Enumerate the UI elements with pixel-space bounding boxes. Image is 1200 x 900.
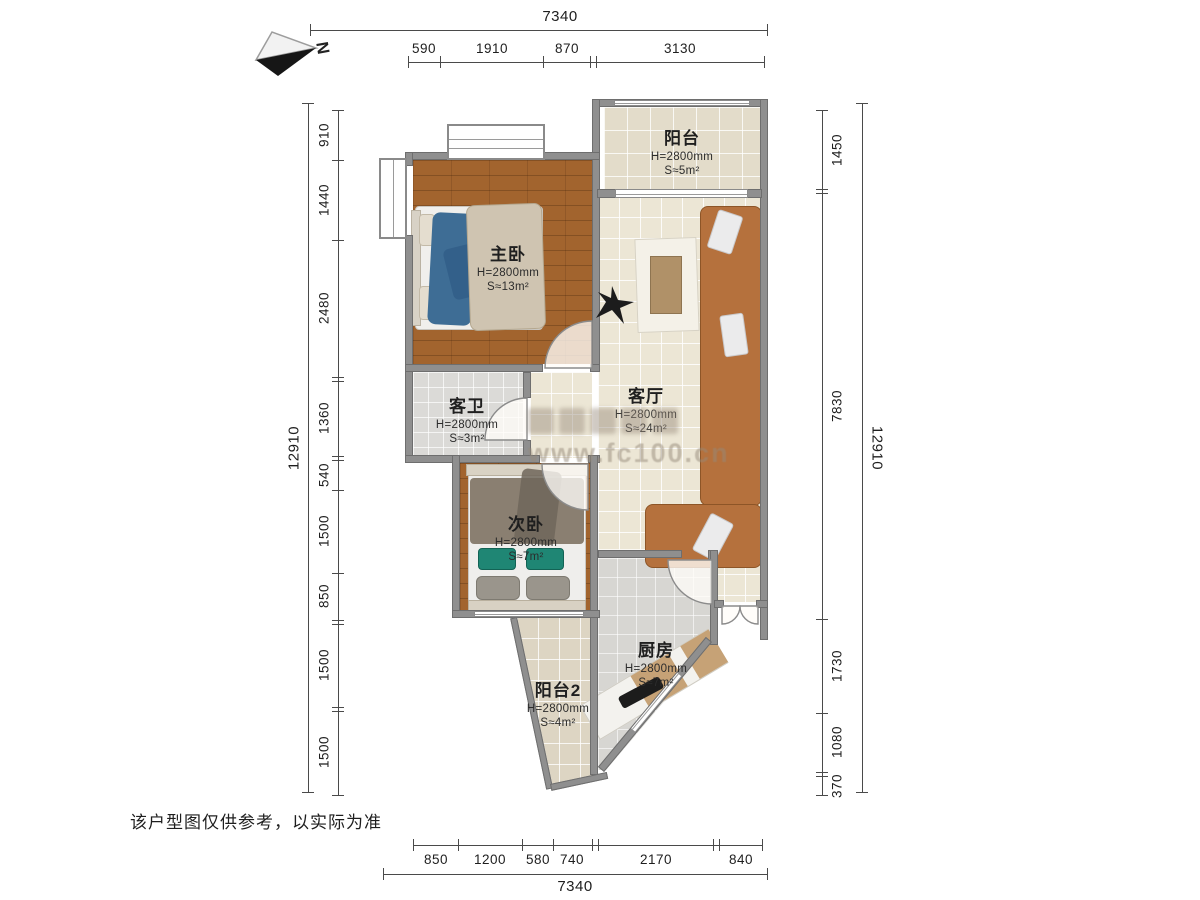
room-height: H=2800mm [495,537,557,549]
dim-top-seg-2: 870 [555,41,579,56]
room-name: 次卧 [495,510,557,535]
dim-tick [408,56,409,68]
dim-right-seg-3: 1080 [830,726,845,758]
dim-bottom-seg-5: 840 [729,852,753,867]
dim-bottom-seg-0: 850 [424,852,448,867]
dim-left-seg-2: 2480 [317,292,332,324]
dim-bottom-seg-1: 1200 [474,852,506,867]
dim-tick [332,711,344,712]
master-door [545,321,592,368]
dim-tick [767,24,768,36]
room-label-kitchen: 厨房 H=2800mm S≈7m² [625,636,687,689]
dim-tick [332,707,344,708]
room-height: H=2800mm [625,663,687,675]
room-label-balcony2: 阳台2 H=2800mm S≈4m² [527,676,589,729]
room-area: S≈4m² [527,717,589,729]
dim-tick [332,620,344,621]
dim-tick [762,839,763,851]
floorplan-canvas: N 7340 590 1910 870 3130 850 1200 580 74… [0,0,1200,900]
room-name: 阳台2 [527,676,589,701]
dim-left-seg-7: 1500 [317,649,332,681]
dim-tick [543,56,544,68]
dim-left-seg-4: 540 [317,463,332,487]
dim-tick [522,839,523,851]
dim-right-seg-0: 1450 [830,134,845,166]
dim-tick [856,103,868,104]
dim-tick [816,713,828,714]
room-label-balcony: 阳台 H=2800mm S≈5m² [651,124,713,177]
dim-line-top-total [310,30,768,31]
kitchen-door [668,560,712,604]
room-height: H=2800mm [615,409,677,421]
dim-line-bottom-total [383,874,768,875]
room-name: 厨房 [625,636,687,661]
dim-bottom-seg-2: 580 [526,852,550,867]
dim-tick [767,868,768,880]
dim-tick [332,460,344,461]
dim-tick [383,868,384,880]
plant-icon [592,280,642,330]
dim-tick [816,193,828,194]
room-height: H=2800mm [436,419,498,431]
dim-line-bottom-segments [413,845,763,846]
dim-line-right-total [862,103,863,793]
dim-top-seg-0: 590 [412,41,436,56]
dim-tick [764,56,765,68]
dim-tick [719,839,720,851]
dim-left-total: 12910 [286,426,303,470]
room-area: S≈3m² [436,433,498,445]
dim-tick [332,381,344,382]
room-name: 客卫 [436,392,498,417]
room-label-living: 客厅 H=2800mm S≈24m² [615,382,677,435]
dim-tick [302,103,314,104]
dim-tick [553,839,554,851]
dim-tick [816,776,828,777]
dim-tick [302,792,314,793]
dim-tick [413,839,414,851]
dim-left-seg-0: 910 [317,123,332,147]
dim-tick [816,189,828,190]
dim-tick [596,56,597,68]
dim-tick [856,792,868,793]
room-height: H=2800mm [651,151,713,163]
dim-tick [310,24,311,36]
second-bedroom-door [542,464,588,510]
dim-left-seg-5: 1500 [317,515,332,547]
entry-door-right [740,606,758,624]
dim-left-seg-1: 1440 [317,184,332,216]
room-label-bedroom2: 次卧 H=2800mm S≈7m² [495,510,557,563]
dim-top-seg-3: 3130 [664,41,696,56]
dim-tick [332,377,344,378]
dim-tick [598,839,599,851]
dim-line-top-segments [408,62,765,63]
dim-line-left-segments [338,110,339,796]
dim-left-seg-3: 1360 [317,402,332,434]
dim-tick [816,795,828,796]
dim-right-seg-4: 370 [830,774,845,798]
dim-tick [590,56,591,68]
disclaimer-text: 该户型图仅供参考，以实际为准 [130,808,382,833]
dim-right-seg-1: 7830 [830,390,845,422]
room-height: H=2800mm [527,703,589,715]
dim-top-total: 7340 [542,8,577,25]
dim-tick [332,456,344,457]
entry-door-left [722,606,740,624]
dim-tick [332,624,344,625]
dim-right-seg-2: 1730 [830,650,845,682]
dim-bottom-total: 7340 [557,878,592,895]
room-label-bathroom: 客卫 H=2800mm S≈3m² [436,392,498,445]
dim-tick [458,839,459,851]
dim-tick [440,56,441,68]
dim-tick [332,490,344,491]
room-area: S≈5m² [651,165,713,177]
dim-tick [332,795,344,796]
dim-bottom-seg-3: 740 [560,852,584,867]
room-area: S≈24m² [615,423,677,435]
dim-tick [332,240,344,241]
dim-tick [332,573,344,574]
dim-tick [816,619,828,620]
room-area: S≈13m² [477,281,539,293]
room-name: 阳台 [651,124,713,149]
room-name: 客厅 [615,382,677,407]
dim-left-seg-6: 850 [317,584,332,608]
dim-bottom-seg-4: 2170 [640,852,672,867]
dim-tick [332,110,344,111]
room-height: H=2800mm [477,267,539,279]
dim-tick [713,839,714,851]
room-name: 主卧 [477,240,539,265]
dim-line-right-segments [822,110,823,796]
dim-tick [816,772,828,773]
room-area: S≈7m² [495,551,557,563]
room-label-master: 主卧 H=2800mm S≈13m² [477,240,539,293]
dim-tick [332,160,344,161]
dim-left-seg-8: 1500 [317,736,332,768]
dim-right-total: 12910 [869,426,886,470]
dim-line-left-total [308,103,309,793]
room-area: S≈7m² [625,677,687,689]
dim-tick [592,839,593,851]
dim-top-seg-1: 1910 [476,41,508,56]
dim-tick [816,110,828,111]
